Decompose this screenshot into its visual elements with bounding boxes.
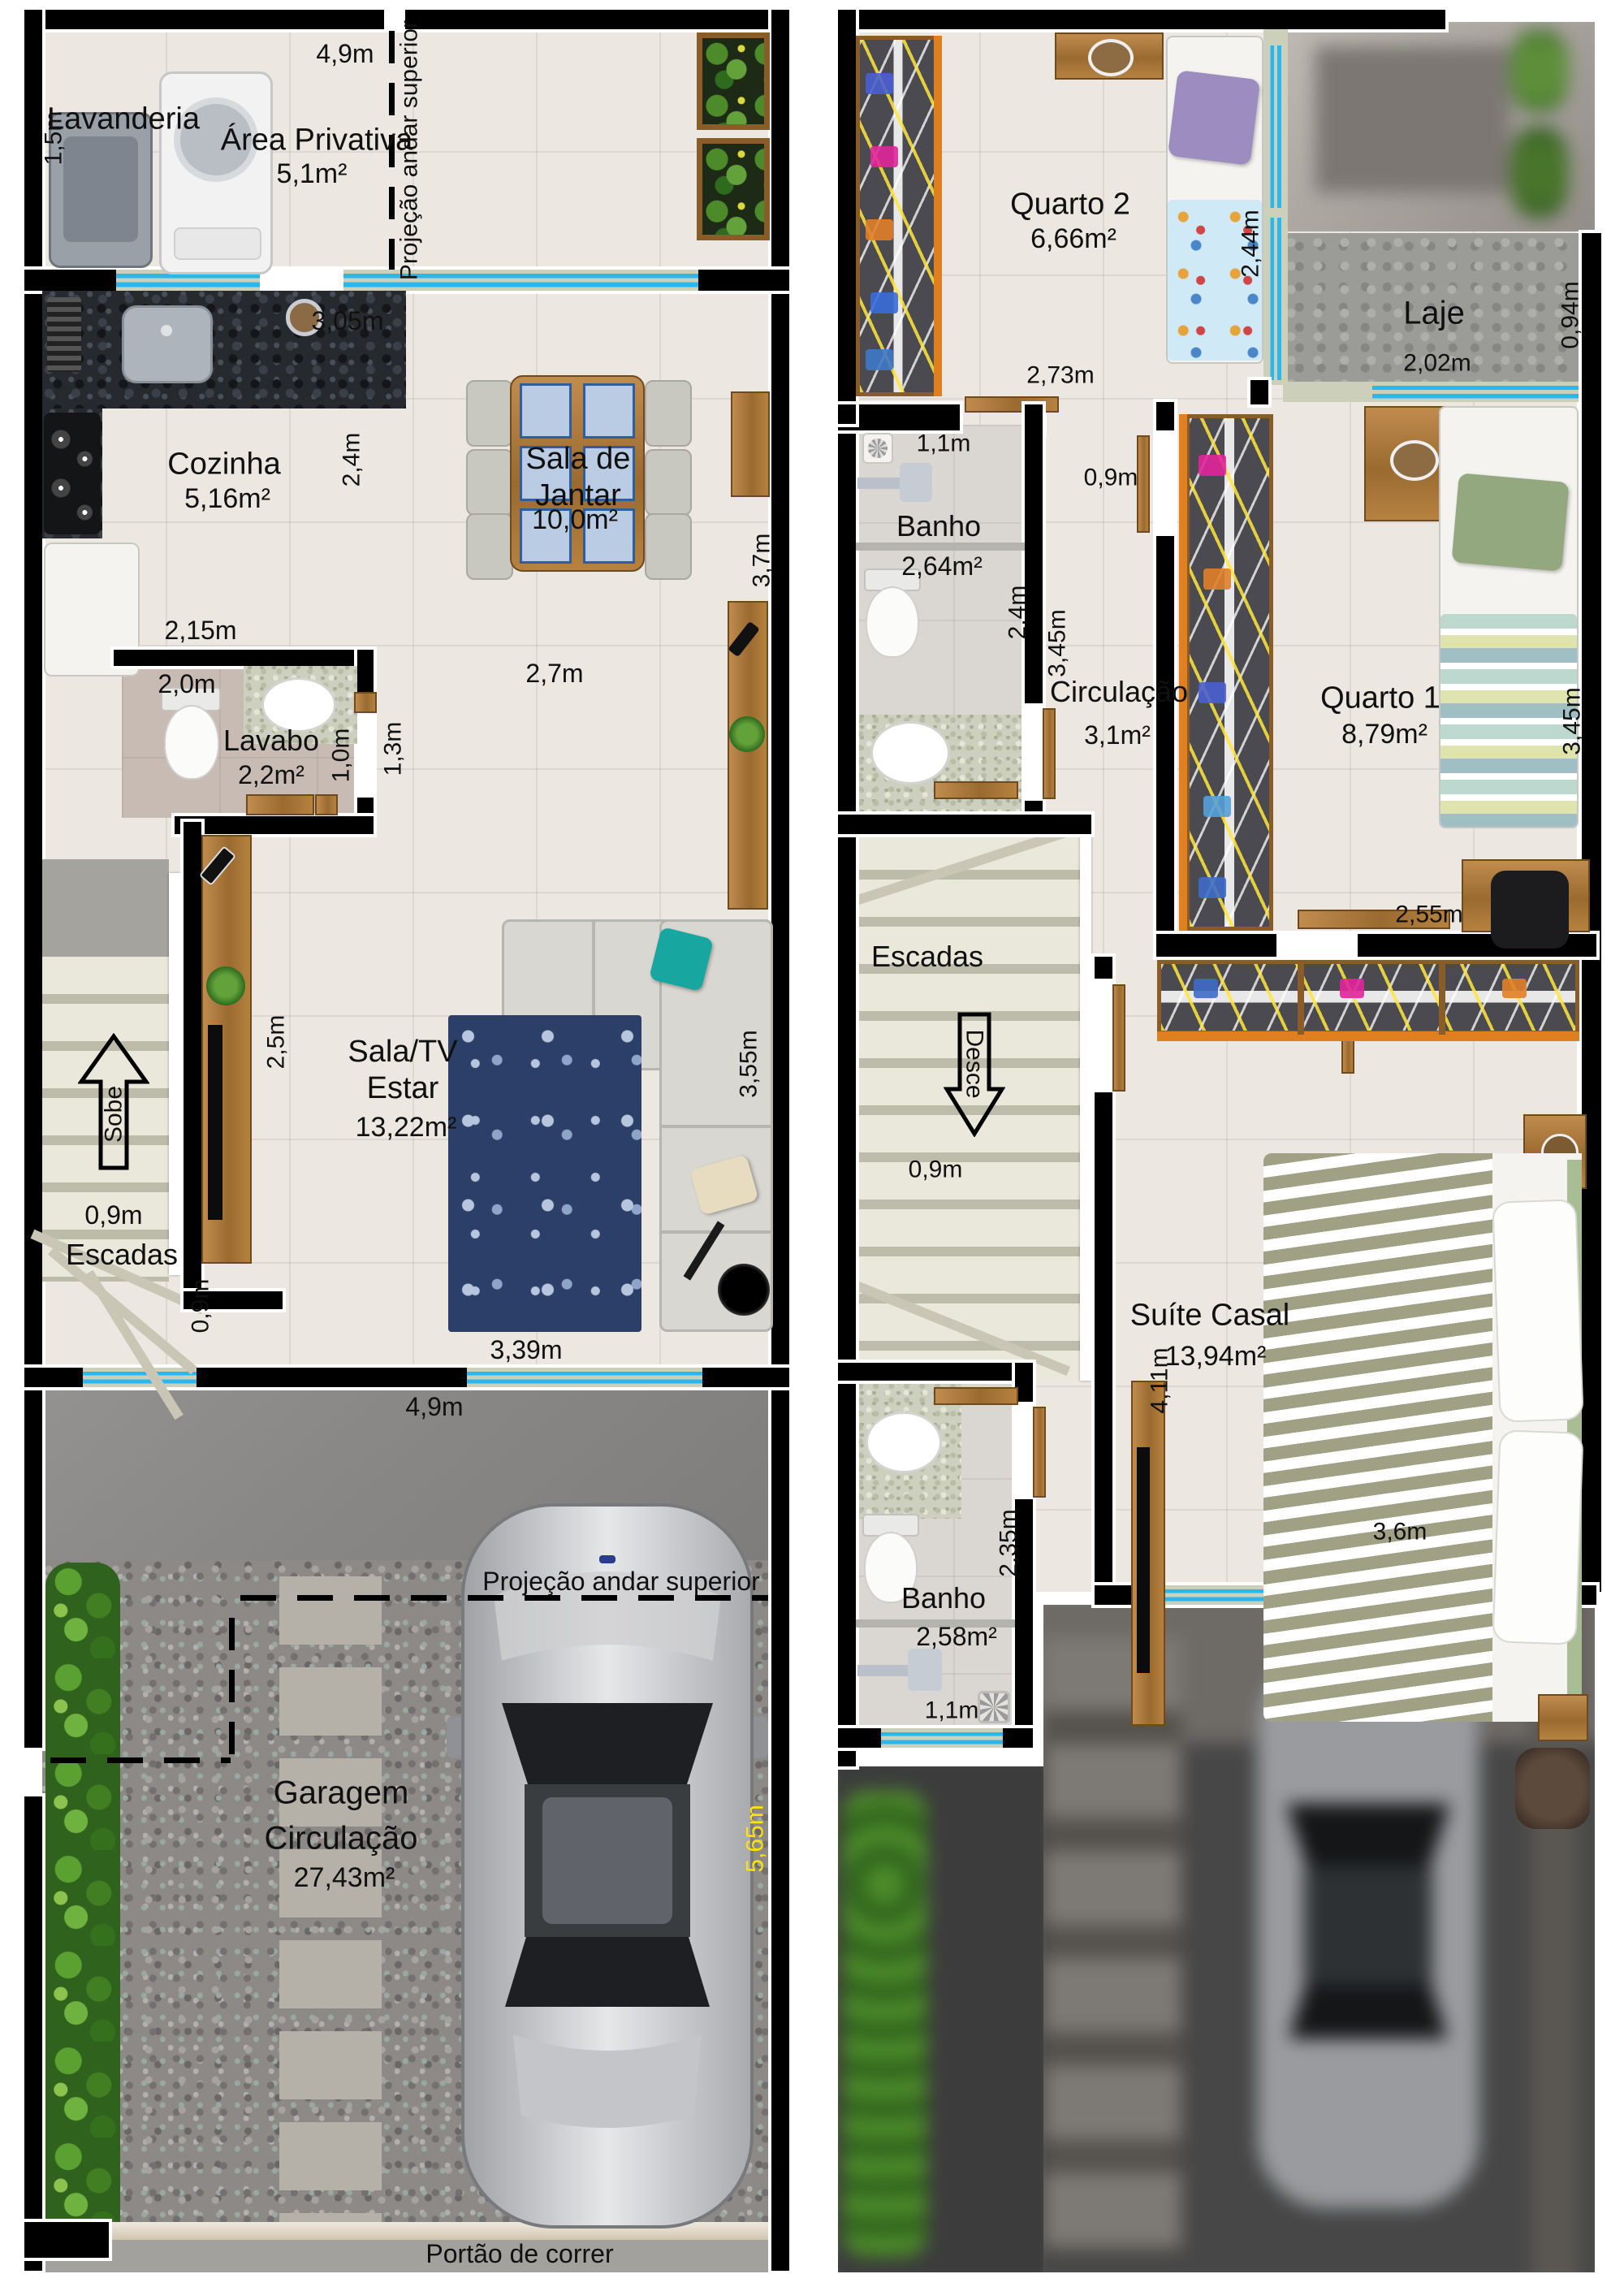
room-label-banho-sup: Banho bbox=[896, 509, 981, 543]
door-jamb bbox=[354, 692, 377, 713]
wall bbox=[175, 816, 374, 834]
room-area-banho-sup: 2,64m² bbox=[901, 551, 983, 582]
dining-chair bbox=[466, 513, 513, 580]
shower-glass bbox=[856, 543, 1025, 551]
projection-dashed-line-left bbox=[50, 1757, 231, 1763]
dining-chair bbox=[645, 380, 692, 447]
window bbox=[881, 1728, 1003, 1748]
door-opening bbox=[1153, 430, 1177, 536]
window bbox=[1267, 45, 1285, 208]
door-jamb bbox=[315, 794, 338, 815]
bath-shelf bbox=[934, 1387, 1018, 1405]
door-leaf bbox=[1043, 708, 1056, 799]
clothes-item bbox=[1502, 979, 1527, 998]
dim-lavabo-height: 1,0m bbox=[326, 728, 355, 783]
tv-screen bbox=[208, 1025, 222, 1220]
door-leaf bbox=[1112, 984, 1125, 1092]
dining-chair bbox=[645, 513, 692, 580]
plant-pot bbox=[729, 716, 765, 752]
dim-banho-suite-height: 2,35m bbox=[994, 1509, 1022, 1576]
stairs-rail bbox=[1080, 832, 1091, 1381]
clothes-item bbox=[870, 146, 898, 167]
dim-laje-height: 0,94m bbox=[1556, 281, 1584, 348]
planter bbox=[697, 138, 770, 240]
dim-banho-sup-width: 1,1m bbox=[917, 429, 971, 457]
dining-chair bbox=[466, 449, 513, 516]
dim-lavanderia-height: 1,5m bbox=[39, 111, 67, 166]
room-label-lavabo: Lavabo bbox=[223, 724, 319, 758]
room-label-banho-suite: Banho bbox=[901, 1581, 986, 1615]
clothes-item bbox=[866, 349, 893, 370]
dim-laje-width: 2,02m bbox=[1403, 348, 1471, 377]
photo-roof-blurred bbox=[1283, 22, 1595, 231]
dim-tv-wall: 2,5m bbox=[261, 1015, 290, 1070]
wall bbox=[1250, 380, 1268, 404]
dish-rack bbox=[47, 297, 81, 372]
dim-lavabo-width: 2,0m bbox=[158, 669, 215, 700]
area-rug bbox=[448, 1015, 641, 1332]
floor-plan-canvas: Lavanderia 1,5m 4,9m Área Privativa 5,1m… bbox=[0, 0, 1624, 2274]
clothes-item bbox=[866, 219, 893, 240]
dim-sala-height: 3,55m bbox=[734, 1030, 762, 1097]
clothes-item bbox=[1194, 979, 1218, 998]
wall bbox=[838, 10, 1445, 29]
clothes-item bbox=[1340, 979, 1364, 998]
tv-screen bbox=[1137, 1447, 1150, 1673]
room-area-sala-tv: 13,22m² bbox=[356, 1111, 457, 1143]
dim-banho-suite-width: 1,1m bbox=[925, 1696, 979, 1724]
dim-garagem-depth: 5,65m bbox=[741, 1805, 769, 1872]
dim-banho-sup-height: 2,4m bbox=[1003, 586, 1031, 640]
dining-chair bbox=[466, 380, 513, 447]
wall bbox=[838, 815, 1091, 834]
direction-desce: Desce bbox=[960, 1029, 988, 1098]
desk-mirror bbox=[1390, 440, 1439, 481]
window bbox=[1372, 382, 1579, 402]
door-opening bbox=[354, 713, 377, 798]
room-area-garagem: 27,43m² bbox=[294, 1861, 395, 1894]
office-chair bbox=[1491, 871, 1569, 949]
room-label-escadas-upper: Escadas bbox=[871, 940, 983, 974]
room-area-circulacao: 3,1m² bbox=[1084, 720, 1151, 751]
plant-pot bbox=[206, 966, 245, 1005]
wall bbox=[838, 404, 960, 430]
toilet-bowl bbox=[866, 586, 919, 658]
dim-escada-width: 0,9m bbox=[84, 1200, 142, 1231]
washer-panel bbox=[174, 227, 261, 260]
door-header-shelf bbox=[965, 396, 1059, 413]
wall bbox=[24, 1796, 42, 2271]
wardrobe-divider bbox=[1439, 960, 1445, 1035]
dim-cozinha-bottom: 2,15m bbox=[165, 616, 237, 646]
annotation-projecao-vertical: Projeção andar superior bbox=[395, 20, 423, 280]
dim-quarto1-height: 3,45m bbox=[1557, 687, 1586, 754]
clothes-item bbox=[1199, 682, 1226, 703]
dim-circ-height: 3,45m bbox=[1043, 609, 1071, 677]
dim-quarto2-height: 2,44m bbox=[1236, 210, 1264, 277]
pouf bbox=[1515, 1748, 1590, 1829]
dim-frente-bottom: 4,9m bbox=[405, 1392, 463, 1423]
wardrobe-trim bbox=[1179, 414, 1187, 931]
pillow bbox=[1492, 1199, 1583, 1422]
room-area-banho-suite: 2,58m² bbox=[916, 1622, 997, 1653]
sideboard bbox=[731, 391, 770, 497]
door-leaf bbox=[1033, 1407, 1046, 1498]
clothes-item bbox=[1199, 455, 1226, 476]
window bbox=[467, 1368, 702, 1387]
dim-suite-width: 3,6m bbox=[1373, 1517, 1427, 1546]
toilet-bowl bbox=[164, 705, 219, 780]
room-area-quarto2: 6,66m² bbox=[1030, 223, 1116, 255]
wardrobe-trim bbox=[1157, 1031, 1579, 1041]
shower-head bbox=[908, 1649, 942, 1691]
bath-basin bbox=[866, 1412, 942, 1473]
bath-basin bbox=[870, 721, 950, 785]
room-label-quarto2: Quarto 2 bbox=[1010, 187, 1130, 223]
projection-dashed-line-vertical bbox=[229, 1618, 235, 1760]
wall bbox=[838, 1363, 1033, 1381]
wardrobe bbox=[1186, 414, 1273, 931]
bath-bench bbox=[934, 781, 1018, 799]
direction-sobe: Sobe bbox=[99, 1086, 127, 1143]
nightstand bbox=[1538, 1694, 1588, 1741]
dim-quarto2-width: 2,73m bbox=[1026, 361, 1094, 389]
wall bbox=[184, 822, 201, 1309]
laundry-sink-basin bbox=[63, 136, 138, 242]
wall bbox=[838, 10, 856, 1766]
stairs-landing bbox=[42, 859, 169, 957]
dim-sala-bottom: 3,39m bbox=[490, 1335, 563, 1366]
duvet bbox=[1440, 614, 1577, 827]
annotation-projecao-garagem: Projeção andar superior bbox=[482, 1567, 760, 1597]
placemat bbox=[583, 383, 635, 439]
clothes-item bbox=[1199, 877, 1226, 898]
exhaust-fan-blades bbox=[868, 439, 888, 458]
room-area-suite: 13,94m² bbox=[1165, 1340, 1267, 1373]
clothes-item bbox=[866, 73, 893, 94]
dim-sala-width: 2,7m bbox=[525, 659, 583, 690]
kitchen-sink bbox=[122, 305, 213, 383]
door-leaf bbox=[1137, 435, 1150, 533]
placemat bbox=[520, 383, 572, 439]
wall bbox=[838, 404, 856, 424]
room-area-quarto1: 8,79m² bbox=[1341, 718, 1427, 750]
room-label-laje: Laje bbox=[1403, 294, 1465, 332]
pillow bbox=[1451, 473, 1569, 571]
wardrobe-divider bbox=[1298, 960, 1304, 1035]
window bbox=[1267, 218, 1285, 380]
clothes-item bbox=[1203, 796, 1231, 817]
dim-cozinha-width: 3,05m bbox=[312, 306, 384, 337]
dim-escada-upper-width: 0,9m bbox=[909, 1155, 963, 1183]
room-label-escadas: Escadas bbox=[66, 1238, 178, 1272]
room-area-cozinha: 5,16m² bbox=[184, 482, 270, 515]
pillow bbox=[1492, 1429, 1583, 1645]
room-area-sala-jantar: 10,0m² bbox=[532, 504, 618, 536]
room-label-circulacao: Circulação bbox=[1050, 675, 1188, 709]
duvet-suite bbox=[1263, 1153, 1494, 1722]
dining-chair bbox=[645, 449, 692, 516]
stairs-rail bbox=[169, 873, 180, 1275]
room-label-garagem-circulacao: Circulação bbox=[265, 1819, 418, 1857]
desk-mirror bbox=[1088, 39, 1134, 76]
dim-suite-top: 2,55m bbox=[1395, 900, 1462, 928]
wall bbox=[114, 650, 374, 666]
room-area-lavabo: 2,2m² bbox=[238, 760, 304, 791]
wall bbox=[771, 10, 789, 2271]
room-label-lavanderia: Lavanderia bbox=[47, 102, 200, 138]
dim-escada-saida: 0,9m bbox=[186, 1279, 214, 1334]
floor-lamp bbox=[718, 1264, 770, 1316]
floor-drain bbox=[978, 1691, 1010, 1723]
sidewalk bbox=[24, 2240, 789, 2272]
door-opening bbox=[260, 266, 343, 294]
room-label-sala-tv: Sala/TV Estar bbox=[348, 1034, 457, 1107]
cooktop bbox=[44, 413, 101, 534]
room-label-garagem: Garagem bbox=[274, 1774, 409, 1812]
clothes-item bbox=[1203, 568, 1231, 590]
dim-cozinha-height: 2,4m bbox=[337, 433, 365, 487]
garage-walkway-pads bbox=[279, 1576, 382, 2222]
room-label-suite: Suíte Casal bbox=[1130, 1298, 1289, 1334]
room-label-cozinha: Cozinha bbox=[167, 447, 280, 483]
door-opening bbox=[1276, 931, 1358, 960]
room-label-area-privativa: Área Privativa bbox=[221, 123, 413, 159]
pillow bbox=[1168, 70, 1260, 166]
dim-hall-height: 1,3m bbox=[378, 722, 407, 776]
wardrobe-trim bbox=[934, 36, 942, 396]
room-label-quarto1: Quarto 1 bbox=[1320, 681, 1440, 717]
clothes-item bbox=[870, 292, 898, 313]
shelf bbox=[246, 794, 314, 815]
planter bbox=[697, 32, 770, 130]
dim-frente-top: 4,9m bbox=[316, 39, 374, 70]
car-top-view bbox=[445, 1498, 770, 2233]
photo-hedge-blurred bbox=[838, 1766, 1043, 2272]
wall bbox=[24, 2222, 109, 2258]
garden-hedge bbox=[45, 1563, 120, 2268]
window bbox=[83, 1368, 197, 1387]
room-area-area-privativa: 5,1m² bbox=[277, 158, 348, 190]
annotation-portao: Portão de correr bbox=[425, 2239, 613, 2270]
dim-circ-top: 0,9m bbox=[1084, 463, 1138, 491]
shower-head bbox=[900, 463, 932, 502]
dim-jantar-height: 3,7m bbox=[747, 534, 775, 588]
kitchen-sink-faucet bbox=[161, 325, 172, 336]
